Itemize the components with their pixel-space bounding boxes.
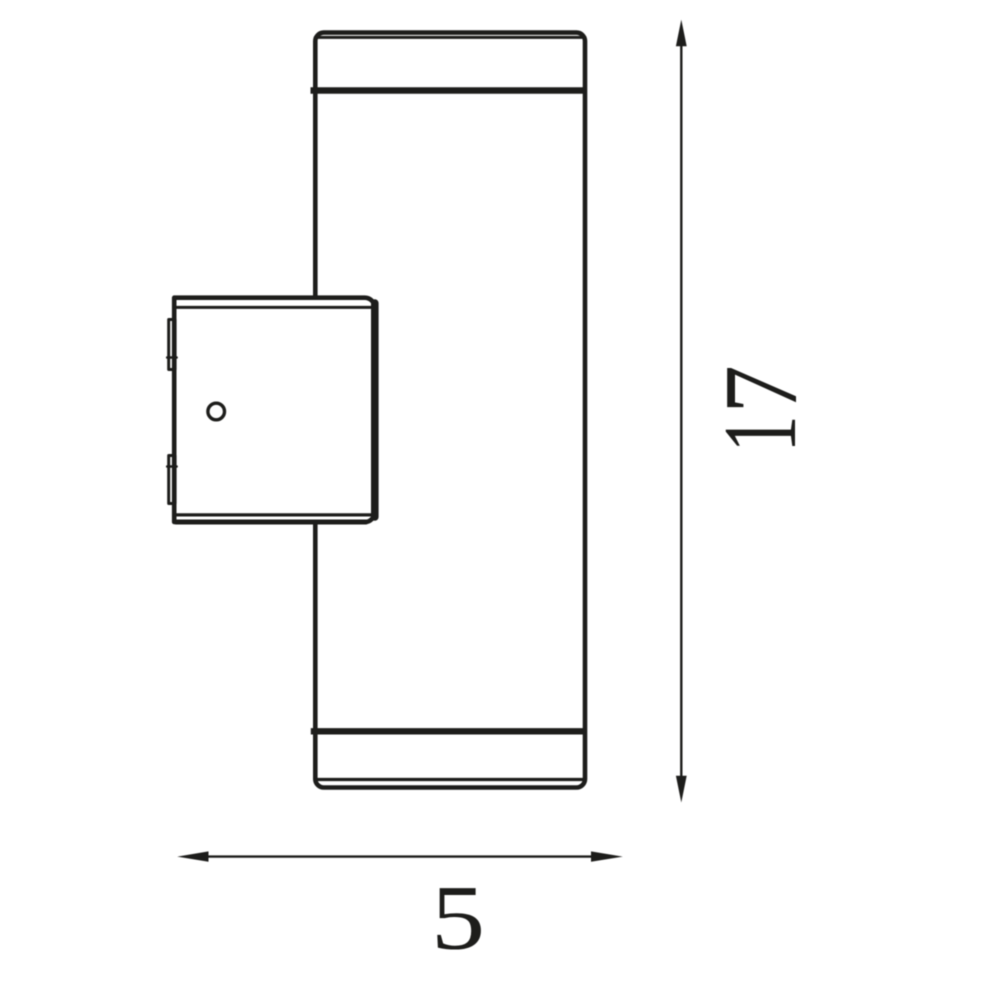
svg-text:5: 5 xyxy=(431,866,485,969)
svg-text:7: 7 xyxy=(702,365,819,413)
svg-text:1: 1 xyxy=(702,415,818,452)
